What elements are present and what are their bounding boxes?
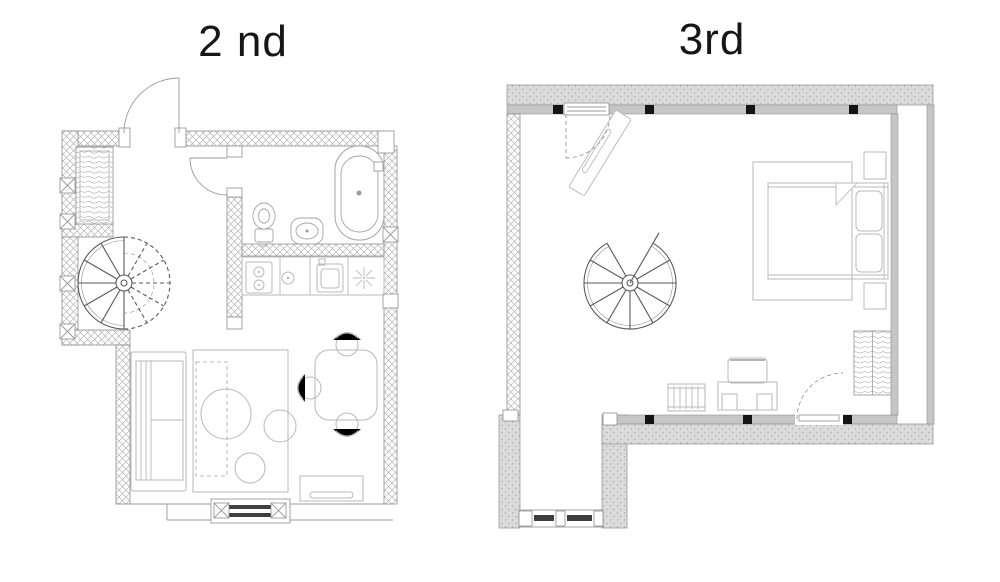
desk bbox=[718, 382, 777, 410]
bathtub bbox=[335, 146, 384, 240]
blanket-fold bbox=[836, 183, 857, 205]
spiral-staircase bbox=[78, 237, 170, 329]
top-window bbox=[564, 103, 609, 115]
toilet bbox=[253, 203, 275, 246]
tv-cabinet bbox=[300, 476, 363, 501]
double-bed bbox=[768, 183, 888, 279]
round-coffee-tables bbox=[201, 389, 296, 483]
floor-plan-canvas: 2 nd 3rd bbox=[0, 0, 1000, 582]
living-room bbox=[131, 333, 377, 502]
entry-door-swing bbox=[124, 78, 179, 133]
spiral-staircase bbox=[584, 233, 676, 329]
pillow bbox=[856, 234, 882, 272]
nightstand bbox=[864, 152, 886, 179]
dining-chairs bbox=[298, 333, 362, 437]
area-rug bbox=[193, 350, 288, 492]
kitchen-sink bbox=[317, 259, 343, 292]
wardrobe bbox=[854, 331, 891, 395]
washbasin bbox=[291, 218, 323, 244]
wardrobe bbox=[76, 147, 113, 224]
sofa bbox=[131, 352, 186, 491]
glazed-window-bay bbox=[211, 499, 290, 523]
interior-door-swing bbox=[190, 158, 227, 195]
desk-set bbox=[718, 358, 777, 410]
radiator bbox=[668, 384, 705, 411]
bathroom bbox=[190, 146, 384, 246]
pillow bbox=[856, 191, 882, 231]
door-swing bbox=[795, 373, 852, 425]
nightstand bbox=[864, 283, 886, 309]
second-floor-plan bbox=[60, 78, 398, 523]
aux-burner bbox=[282, 272, 294, 284]
dining-table bbox=[315, 350, 377, 420]
two-burner-stove bbox=[246, 262, 272, 293]
dormer-glazed-window bbox=[519, 510, 603, 527]
roof-window-skylight bbox=[566, 110, 631, 196]
kitchen bbox=[242, 257, 384, 295]
bedroom bbox=[668, 152, 891, 411]
fan-symbol bbox=[353, 267, 375, 289]
floor-plans-drawing bbox=[0, 0, 1000, 582]
third-floor-plan bbox=[499, 85, 934, 528]
desk-chair bbox=[728, 358, 767, 383]
third-floor-walls bbox=[499, 85, 934, 528]
